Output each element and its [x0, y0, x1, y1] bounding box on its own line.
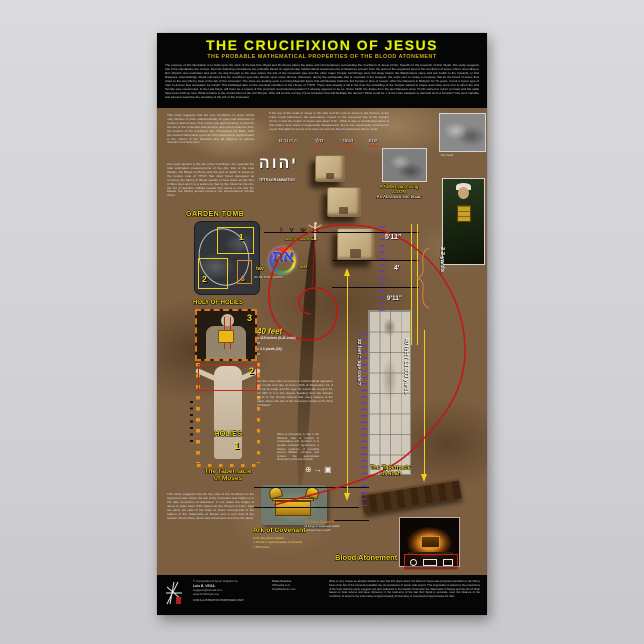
ark-direction-symbols-icon: ⊕ → ▣ — [305, 465, 332, 474]
escarpment-photo-bw — [382, 148, 427, 182]
width-4-label: 4' — [394, 265, 400, 272]
block-niche — [339, 207, 349, 214]
yellow-right-line — [424, 330, 425, 474]
postscripts-logo-icon — [164, 580, 184, 606]
inri-word-group: מלך KING — [308, 138, 330, 148]
ark-timber-beam-photo — [361, 478, 462, 513]
poster-header: THE CRUCIFIXION OF JESUS THE PROBABLE MA… — [157, 33, 487, 108]
main-illustration: This study suggests that the very crucif… — [157, 108, 487, 575]
left-paragraph-3: This study suggests that the key ratio o… — [167, 493, 254, 520]
center-did-paragraph: Did the event also record as a mathemati… — [257, 380, 333, 407]
tabernacle-of-moses-line2: of Moses — [191, 475, 265, 482]
on-the-cross-caption: On the Cross, Adonai — [254, 275, 318, 279]
center-top-paragraph: If the top of the head of Jesus is the s… — [269, 112, 389, 132]
intro-paragraph: The purpose of this illustration is to b… — [165, 63, 479, 99]
feet40-info-block: 40 feet = 119 inches (9-11 code) or = 3.… — [257, 327, 335, 358]
noah-label-line2: of Noah — [366, 471, 416, 477]
purple-ruler — [361, 332, 367, 510]
yellow-measure-line — [411, 224, 412, 345]
ark-conversion-lines: if phi ratio factor applied = 40 feet or… — [253, 536, 327, 549]
holy-of-holies-label: HOLY OF HOLIES — [193, 300, 243, 306]
priest-head — [458, 187, 469, 199]
tomb-chamber-1 — [217, 227, 254, 254]
sources-column: Some Sources Wikipedia.com WyattMuseum.c… — [272, 580, 324, 610]
inri-hebrew-word: היהודים — [272, 138, 304, 143]
pictograph-dots-column — [190, 401, 193, 443]
inri-hebrew-word: הנצרי — [333, 138, 361, 143]
poster-subtitle: THE PROBABLE MATHEMATICAL PROPERTIES OF … — [157, 54, 487, 60]
stone-ruin-block — [315, 155, 345, 182]
inri-word-group: ישוע JOSHUA — [364, 138, 384, 148]
tomb-number-3: 3 — [241, 276, 245, 283]
mini-diagram-glyph — [423, 559, 437, 566]
mini-diagram-glyph — [443, 559, 453, 566]
inri-word-group: היהודים JEWS — [272, 138, 304, 148]
measure-line — [332, 287, 419, 288]
aleph-tav-hebrew: את — [266, 248, 300, 265]
glowing-ark-silhouette — [421, 536, 440, 548]
block-niche — [326, 173, 334, 180]
inri-translation-label: NAZARENE — [333, 144, 361, 148]
block-niche — [350, 249, 361, 257]
ark-box — [275, 501, 311, 516]
inri-translation-label: KING — [308, 144, 330, 148]
priest-breastplate — [457, 205, 471, 222]
tav-label: tav — [256, 266, 264, 272]
flesh-shroud-line: —44 feet from cross? — [304, 528, 364, 532]
down-arrow-icon — [421, 474, 427, 482]
tetragrammaton-label: TETRAGRAMMATON — [259, 178, 295, 182]
poster-title: THE CRUCIFIXION OF JESUS — [157, 37, 487, 53]
yhwh-hebrew-text: יהוה — [259, 155, 298, 173]
footer-note: What is very unique as already alluded t… — [329, 580, 480, 610]
yellow-center-line — [347, 276, 348, 493]
tomb-number-2: 2 — [202, 274, 207, 284]
figure-arm — [315, 224, 322, 229]
inri-translation-label: JOSHUA — [364, 144, 384, 148]
inri-hebrew-word: ישוע — [364, 138, 384, 143]
feet-40-rotated-label: 40 feet / 13.333 yards — [403, 338, 409, 394]
body-number-1: 1 — [234, 441, 240, 452]
yards-3-3-rotated-label: 3.3 yards — [439, 247, 445, 272]
inri-hebrew-word: מלך — [308, 138, 330, 143]
inri-word-group: הנצרי NAZARENE — [333, 138, 361, 148]
photo-caption: Ron Wyatt — [441, 154, 453, 157]
garden-tomb-diagram: 1 2 3 — [195, 222, 259, 294]
body-number-2: 2 — [249, 366, 254, 377]
source-item: WyattMuseum.com — [272, 588, 324, 592]
feet40-heading: 40 feet — [257, 327, 335, 336]
mini-diagram-glyph — [410, 559, 417, 566]
flesh-shroud-note: The Flesh Shroud is 44 Kings of Israel a… — [304, 520, 364, 532]
high-priest-photo — [442, 178, 485, 265]
alef-label: alef — [300, 264, 307, 269]
blood-atonement-label: Blood Atonement — [335, 553, 397, 562]
inri-translation-label: JEWS — [272, 144, 304, 148]
author-website: www.PostScripts.org — [193, 593, 267, 597]
left-paragraph-1: This study suggests that the very crucif… — [167, 114, 254, 145]
illustration-disclaimer: FOR ILLUSTRATION PURPOSES ONLY — [193, 599, 267, 603]
tabernacle-pillar-rail — [197, 464, 259, 468]
yellow-measure-line — [417, 224, 418, 345]
father-sacrificing-caption: A Father sacrificing a SON As Abraham an… — [369, 184, 429, 199]
father-caption-line3: As Abraham and Isaac — [369, 194, 429, 199]
ark-of-covenant-drawing — [261, 485, 327, 525]
up-arrow-icon — [344, 268, 350, 276]
height-5-11-label: 5'11" — [385, 234, 401, 241]
depth-9-11-label: 9'11" — [387, 295, 402, 302]
measure-line — [254, 487, 369, 488]
hoh-number-3: 3 — [247, 313, 252, 323]
down-arrow-icon — [344, 493, 350, 501]
page-background: THE CRUCIFIXION OF JESUS THE PROBABLE MA… — [0, 0, 644, 644]
yards-brace — [417, 248, 429, 308]
poster: THE CRUCIFIXION OF JESUS THE PROBABLE MA… — [157, 33, 487, 615]
ark-of-covenant-label: Ark of Covenant — [253, 527, 306, 534]
tabernacle-pillar-rail — [257, 363, 261, 463]
mercy-seat-mini-diagram — [404, 554, 458, 570]
left-paragraph-2: One such element is the site of the Cruc… — [167, 163, 254, 198]
feet-32-rotated-label: 32 feet = 'age code'? — [356, 339, 361, 386]
measure-line — [332, 260, 419, 261]
poster-footer: © Composition & Some Graphics by Luis B.… — [157, 575, 487, 615]
stone-ruin-block — [327, 187, 361, 217]
body-tabernacle-diagram: 2 HOLIES 1 — [197, 363, 259, 463]
mercy-seat-square — [218, 330, 234, 343]
center-what-paragraph: What is interesting is that if the dista… — [277, 433, 319, 462]
tabernacle-of-moses-label: The Tabernacle of Moses — [191, 468, 265, 482]
ark-conversion-line: = 480 inches — [253, 545, 327, 549]
credits-column: © Composition & Some Graphics by Luis B.… — [193, 580, 267, 610]
holies-label: HOLIES — [197, 429, 259, 438]
logo-column — [164, 580, 188, 610]
tabernacle-of-moses-line1: The Tabernacle — [191, 468, 265, 475]
feet40-line: or — [257, 352, 335, 357]
holy-of-holies-diagram: 3 — [195, 309, 257, 361]
garden-tomb-label: GARDEN TOMB — [186, 211, 244, 218]
tomb-number-1: 1 — [239, 232, 244, 242]
tabernacle-of-noah-label: The 'Tabernacle' of Noah — [366, 465, 416, 477]
site-photo-bw — [439, 113, 486, 152]
measure-line — [254, 507, 359, 508]
